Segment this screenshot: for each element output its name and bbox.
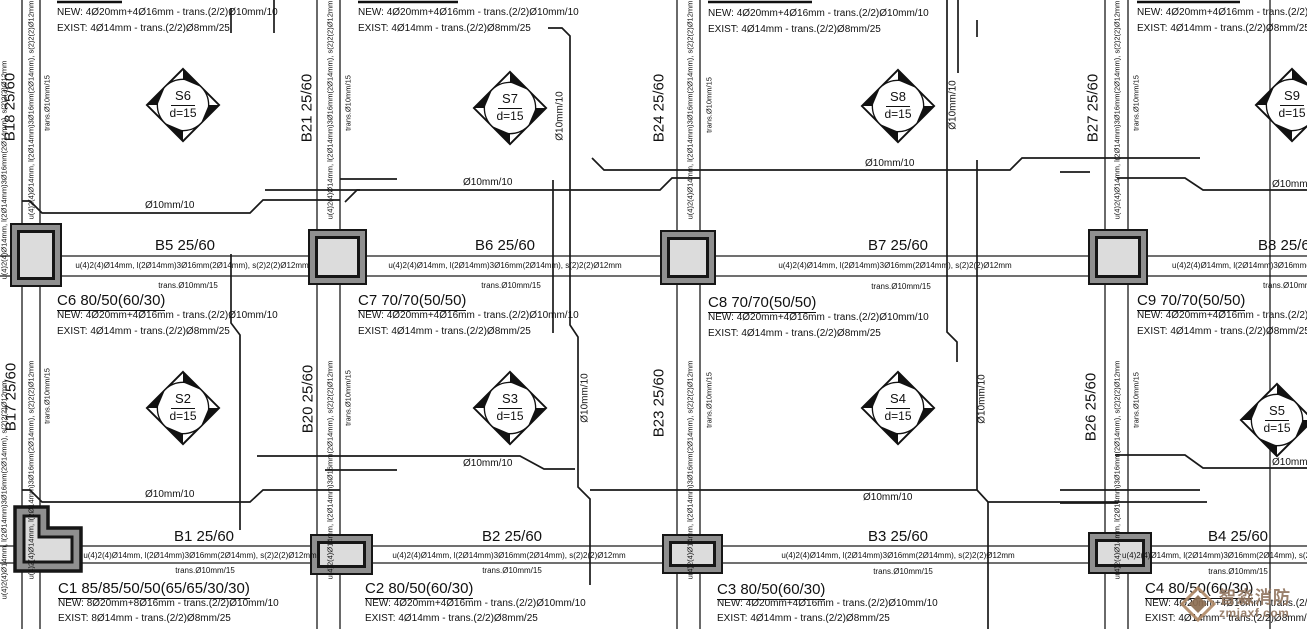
beam-label-h: B3 25/60 <box>868 528 928 545</box>
column-title: C6 80/50(60/30) <box>57 292 165 311</box>
slab-label: S6 <box>171 89 195 105</box>
slab-label: S7 <box>498 92 522 108</box>
column-exist-spec: EXIST: 4Ø14mm - trans.(2/2)Ø8mm/25 <box>358 23 531 34</box>
column-title: C9 70/70(50/50) <box>1137 292 1245 311</box>
rebar-spacing-label: Ø10mm/10 <box>977 374 988 423</box>
axis-rebar-annotation: u(4)2(4)Ø14mm, l(2Ø14mm)3Ø16mm(2Ø14mm), … <box>0 381 9 600</box>
beam-trans-annotation: trans.Ø10mm/15 <box>873 567 933 576</box>
column-title: C2 80/50(60/30) <box>365 580 473 599</box>
column-exist-spec: EXIST: 4Ø14mm - trans.(2/2)Ø8mm/25 <box>365 613 538 624</box>
rebar-spacing-label: Ø10mm/10 <box>1272 457 1307 468</box>
beam-rebar-annotation: u(4)2(4)Ø14mm, l(2Ø14mm)3Ø16mm(2Ø14mm), … <box>388 261 621 270</box>
slab-thickness: d=15 <box>496 409 523 424</box>
column-block-l-shape <box>12 504 84 579</box>
axis-trans-annotation: trans.Ø10mm/15 <box>1132 372 1141 428</box>
beam-trans-annotation: trans.Ø10mm/15 <box>1263 281 1307 290</box>
column-block <box>660 230 716 285</box>
rebar-spacing-label: Ø10mm/10 <box>463 458 512 469</box>
beam-trans-annotation: trans.Ø10mm/15 <box>1208 567 1268 576</box>
watermark: 智淼消防 zmjaxf.com <box>1180 586 1291 622</box>
beam-rebar-annotation: u(4)2(4)Ø14mm, l(2Ø14mm)3Ø16mm(2Ø14mm), … <box>1122 551 1307 560</box>
beam-trans-annotation: trans.Ø10mm/15 <box>175 566 235 575</box>
axis-rebar-annotation: u(4)2(4)Ø14mm, l(2Ø14mm)3Ø16mm(2Ø14mm), … <box>1113 1 1122 220</box>
beam-label-h: B8 25/60 <box>1258 237 1307 254</box>
column-new-spec: NEW: 4Ø20mm+4Ø16mm - trans.(2/2)Ø10mm/10 <box>717 598 938 609</box>
beam-label-v: B24 25/60 <box>651 74 668 142</box>
rebar-spacing-label: Ø10mm/10 <box>580 373 591 422</box>
beam-label-v: B27 25/60 <box>1085 74 1102 142</box>
column-exist-spec: EXIST: 8Ø14mm - trans.(2/2)Ø8mm/25 <box>58 613 231 624</box>
axis-rebar-annotation: u(4)2(4)Ø14mm, l(2Ø14mm)3Ø16mm(2Ø14mm), … <box>27 361 36 580</box>
column-new-spec: NEW: 4Ø20mm+4Ø16mm - trans.(2/2)Ø10mm/10 <box>358 310 579 321</box>
column-exist-spec: EXIST: 4Ø14mm - trans.(2/2)Ø8mm/25 <box>358 326 531 337</box>
column-block <box>310 534 373 575</box>
watermark-brand: 智淼消防 <box>1219 589 1291 606</box>
slab-marker: S4d=15 <box>860 370 936 446</box>
rebar-spacing-label: Ø10mm/10 <box>463 177 512 188</box>
column-new-spec: NEW: 4Ø20mm+4Ø16mm - trans.(2/2)Ø10mm/10 <box>708 312 929 323</box>
beam-label-v: B26 25/60 <box>1083 373 1100 441</box>
column-new-spec: NEW: 4Ø20mm+4Ø16mm - trans.(2/2)Ø10mm/10 <box>57 7 278 18</box>
column-exist-spec: EXIST: 4Ø14mm - trans.(2/2)Ø8mm/25 <box>708 328 881 339</box>
rebar-spacing-label: Ø10mm/10 <box>145 200 194 211</box>
slab-label: S8 <box>886 90 910 106</box>
slab-marker: S7d=15 <box>472 70 548 146</box>
column-exist-spec: EXIST: 4Ø14mm - trans.(2/2)Ø8mm/25 <box>1137 326 1307 337</box>
column-exist-spec: EXIST: 4Ø14mm - trans.(2/2)Ø8mm/25 <box>708 24 881 35</box>
beam-label-v: B21 25/60 <box>299 74 316 142</box>
beam-label-h: B4 25/60 <box>1208 528 1268 545</box>
axis-trans-annotation: trans.Ø10mm/15 <box>344 75 353 131</box>
beam-label-h: B1 25/60 <box>174 528 234 545</box>
axis-trans-annotation: trans.Ø10mm/15 <box>705 77 714 133</box>
slab-marker: S5d=15 <box>1239 382 1307 458</box>
axis-rebar-annotation: u(4)2(4)Ø14mm, l(2Ø14mm)3Ø16mm(2Ø14mm), … <box>686 361 695 580</box>
slab-thickness: d=15 <box>1263 421 1290 436</box>
beam-rebar-annotation: u(4)2(4)Ø14mm, l(2Ø14mm)3Ø16mm(2Ø14mm), … <box>778 261 1011 270</box>
beam-rebar-annotation: u(4)2(4)Ø14mm, l(2Ø14mm)3Ø16mm(2Ø14mm), … <box>1172 261 1307 270</box>
axis-rebar-annotation: u(4)2(4)Ø14mm, l(2Ø14mm)3Ø16mm(2Ø14mm), … <box>326 1 335 220</box>
slab-thickness: d=15 <box>884 409 911 424</box>
column-new-spec: NEW: 8Ø20mm+8Ø16mm - trans.(2/2)Ø10mm/10 <box>58 598 279 609</box>
rebar-spacing-label: Ø10mm/10 <box>555 91 566 140</box>
column-exist-spec: EXIST: 4Ø14mm - trans.(2/2)Ø8mm/25 <box>717 613 890 624</box>
column-block <box>1088 229 1148 285</box>
rebar-spacing-label: Ø10mm/10 <box>948 80 959 129</box>
axis-trans-annotation: trans.Ø10mm/15 <box>705 372 714 428</box>
column-new-spec: NEW: 4Ø20mm+4Ø16mm - trans.(2/2)Ø10mm/10 <box>708 8 929 19</box>
column-exist-spec: EXIST: 4Ø14mm - trans.(2/2)Ø8mm/25 <box>57 326 230 337</box>
column-title: C8 70/70(50/50) <box>708 294 816 313</box>
slab-marker: S2d=15 <box>145 370 221 446</box>
column-new-spec: NEW: 4Ø20mm+4Ø16mm - trans.(2/2)Ø10mm/10 <box>365 598 586 609</box>
rebar-spacing-label: Ø10mm/10 <box>865 158 914 169</box>
column-block <box>10 223 62 287</box>
beam-rebar-annotation: u(4)2(4)Ø14mm, l(2Ø14mm)3Ø16mm(2Ø14mm), … <box>83 551 316 560</box>
axis-trans-annotation: trans.Ø10mm/15 <box>344 370 353 426</box>
column-block <box>308 229 367 285</box>
beam-trans-annotation: trans.Ø10mm/15 <box>481 281 541 290</box>
beam-rebar-annotation: u(4)2(4)Ø14mm, l(2Ø14mm)3Ø16mm(2Ø14mm), … <box>781 551 1014 560</box>
slab-thickness: d=15 <box>884 107 911 122</box>
slab-marker: S9d=15 <box>1254 67 1307 143</box>
beam-label-h: B2 25/60 <box>482 528 542 545</box>
beam-trans-annotation: trans.Ø10mm/15 <box>482 566 542 575</box>
beam-label-v: B23 25/60 <box>651 369 668 437</box>
axis-rebar-annotation: u(4)2(4)Ø14mm, l(2Ø14mm)3Ø16mm(2Ø14mm), … <box>27 1 36 220</box>
axis-rebar-annotation: u(4)2(4)Ø14mm, l(2Ø14mm)3Ø16mm(2Ø14mm), … <box>326 361 335 580</box>
column-title: C7 70/70(50/50) <box>358 292 466 311</box>
slab-label: S5 <box>1265 404 1289 420</box>
column-exist-spec: EXIST: 4Ø14mm - trans.(2/2)Ø8mm/25 <box>1137 23 1307 34</box>
structural-plan-drawing: S6d=15 S7d=15 S8d=15 S9d=15 S2d=15 S3d=1… <box>0 0 1307 629</box>
slab-thickness: d=15 <box>169 409 196 424</box>
rebar-spacing-label: Ø10mm/10 <box>145 489 194 500</box>
beam-label-h: B6 25/60 <box>475 237 535 254</box>
column-exist-spec: EXIST: 4Ø14mm - trans.(2/2)Ø8mm/25 <box>57 23 230 34</box>
axis-trans-annotation: trans.Ø10mm/15 <box>43 75 52 131</box>
column-new-spec: NEW: 4Ø20mm+4Ø16mm - trans.(2/2)Ø10mm/10 <box>1137 310 1307 321</box>
beam-label-h: B7 25/60 <box>868 237 928 254</box>
column-new-spec: NEW: 4Ø20mm+4Ø16mm - trans.(2/2)Ø10mm/10 <box>1137 7 1307 18</box>
beam-rebar-annotation: u(4)2(4)Ø14mm, l(2Ø14mm)3Ø16mm(2Ø14mm), … <box>75 261 308 270</box>
beam-label-v: B20 25/60 <box>300 365 317 433</box>
slab-label: S3 <box>498 392 522 408</box>
column-new-spec: NEW: 4Ø20mm+4Ø16mm - trans.(2/2)Ø10mm/10 <box>57 310 278 321</box>
slab-thickness: d=15 <box>1278 106 1305 121</box>
axis-trans-annotation: trans.Ø10mm/15 <box>43 368 52 424</box>
slab-marker: S3d=15 <box>472 370 548 446</box>
slab-marker: S8d=15 <box>860 68 936 144</box>
watermark-site: zmjaxf.com <box>1219 607 1291 619</box>
axis-rebar-annotation: u(4)2(4)Ø14mm, l(2Ø14mm)3Ø16mm(2Ø14mm), … <box>1113 361 1122 580</box>
axis-rebar-annotation: u(4)2(4)Ø14mm, l(2Ø14mm)3Ø16mm(2Ø14mm), … <box>0 61 9 280</box>
slab-label: S4 <box>886 392 910 408</box>
column-new-spec: NEW: 4Ø20mm+4Ø16mm - trans.(2/2)Ø10mm/10 <box>358 7 579 18</box>
beam-trans-annotation: trans.Ø10mm/15 <box>871 282 931 291</box>
slab-thickness: d=15 <box>496 109 523 124</box>
rebar-spacing-label: Ø10mm/10 <box>1272 179 1307 190</box>
slab-label: S2 <box>171 392 195 408</box>
slab-marker: S6d=15 <box>145 67 221 143</box>
column-title: C1 85/85/50/50(65/65/30/30) <box>58 580 250 599</box>
beam-rebar-annotation: u(4)2(4)Ø14mm, l(2Ø14mm)3Ø16mm(2Ø14mm), … <box>392 551 625 560</box>
watermark-logo-icon <box>1180 586 1216 622</box>
slab-label: S9 <box>1280 89 1304 105</box>
axis-rebar-annotation: u(4)2(4)Ø14mm, l(2Ø14mm)3Ø16mm(2Ø14mm), … <box>686 1 695 220</box>
axis-trans-annotation: trans.Ø10mm/15 <box>1132 75 1141 131</box>
slab-thickness: d=15 <box>169 106 196 121</box>
rebar-spacing-label: Ø10mm/10 <box>863 492 912 503</box>
beam-trans-annotation: trans.Ø10mm/15 <box>158 281 218 290</box>
beam-label-h: B5 25/60 <box>155 237 215 254</box>
